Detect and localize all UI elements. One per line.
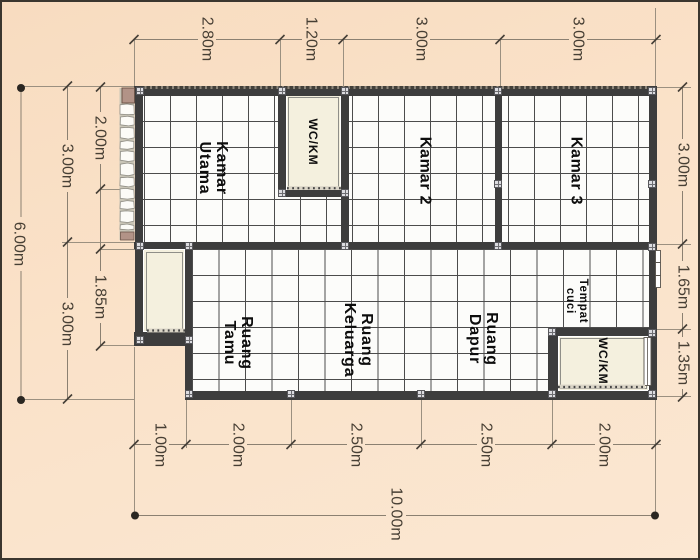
svg-text:10.00m: 10.00m (388, 487, 405, 540)
